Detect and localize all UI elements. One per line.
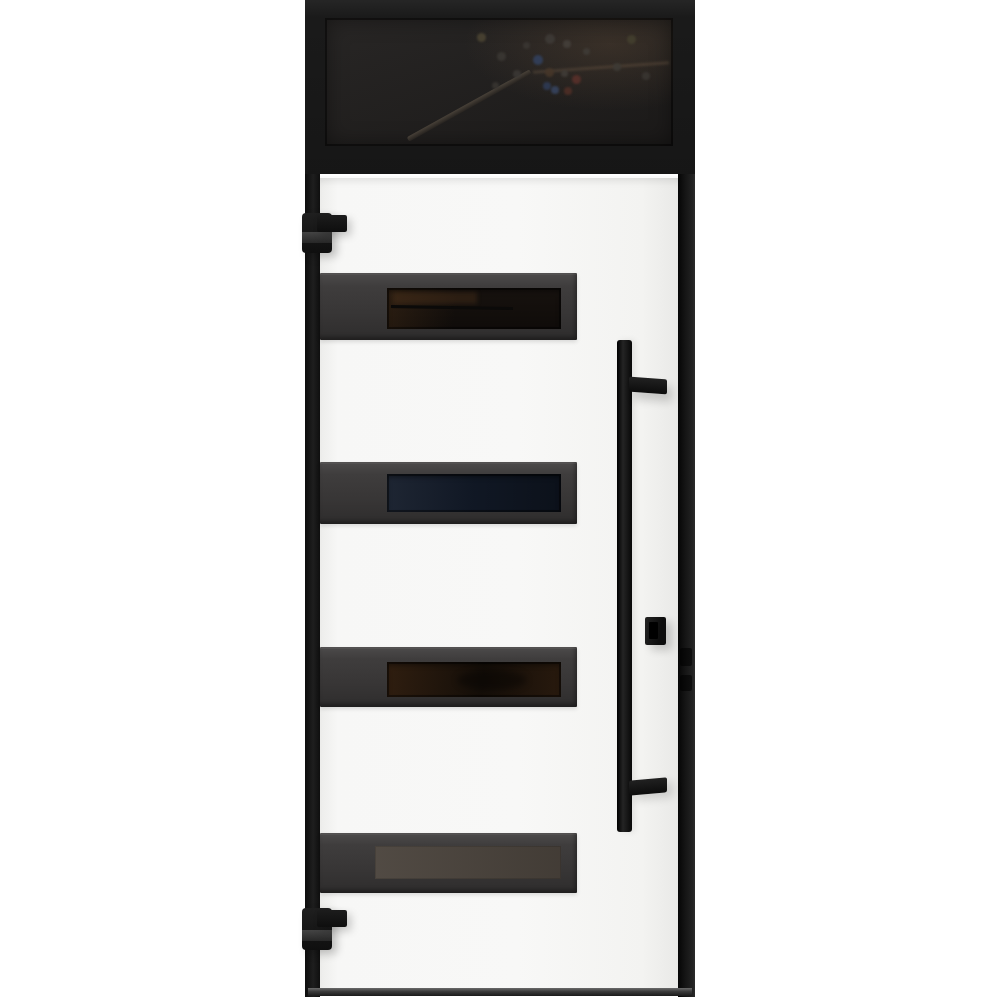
strip-1-glass <box>387 288 561 329</box>
reflection-dot <box>551 86 559 94</box>
keyhole <box>649 622 658 639</box>
reflection-dot <box>561 70 568 77</box>
reflection-dot <box>523 42 530 49</box>
reflection-dot <box>533 55 543 65</box>
glass-strip-4 <box>320 833 577 893</box>
strike-plate-mark <box>680 648 692 666</box>
reflection-dot <box>545 68 554 77</box>
reflection-dot <box>513 70 521 78</box>
hinge-barrel <box>302 930 332 941</box>
glass-reflection-line <box>391 305 513 310</box>
reflection-dot <box>572 75 581 84</box>
reflection-dot <box>545 34 555 44</box>
reflection-dot <box>477 33 486 42</box>
threshold-sill <box>308 988 692 996</box>
strip-4-glass <box>375 846 561 879</box>
hinge-barrel <box>302 232 332 243</box>
left-door-frame <box>305 174 320 997</box>
glass-reflection-smear <box>393 292 477 304</box>
hinge-arm-top <box>317 215 347 232</box>
door-product-photo <box>0 0 1000 1000</box>
strip-2-glass <box>387 474 561 512</box>
reflection-dot <box>613 63 621 71</box>
reflection-dot <box>492 82 499 89</box>
pull-handle-bar <box>617 340 632 832</box>
glass-strip-1 <box>320 273 577 340</box>
glass-reflection-blotch <box>457 670 527 690</box>
right-door-frame <box>678 174 695 997</box>
reflection-dot <box>583 48 590 55</box>
reflection-dot <box>563 40 571 48</box>
glass-strip-2 <box>320 462 577 524</box>
handle-bracket-top <box>629 377 667 395</box>
strip-3-glass <box>387 662 561 697</box>
lock-cylinder <box>645 617 666 645</box>
reflection-stick <box>407 69 532 141</box>
transom-frame <box>305 0 695 174</box>
hinge-arm-bottom <box>317 910 347 927</box>
reflection-dot <box>564 87 572 95</box>
glass-strip-3 <box>320 647 577 707</box>
reflection-dot <box>642 72 650 80</box>
transom-glass <box>325 18 673 146</box>
reflection-dot <box>543 82 551 90</box>
reflection-dot <box>627 35 636 44</box>
strike-plate-mark <box>680 675 692 691</box>
reflection-dot <box>497 52 506 61</box>
